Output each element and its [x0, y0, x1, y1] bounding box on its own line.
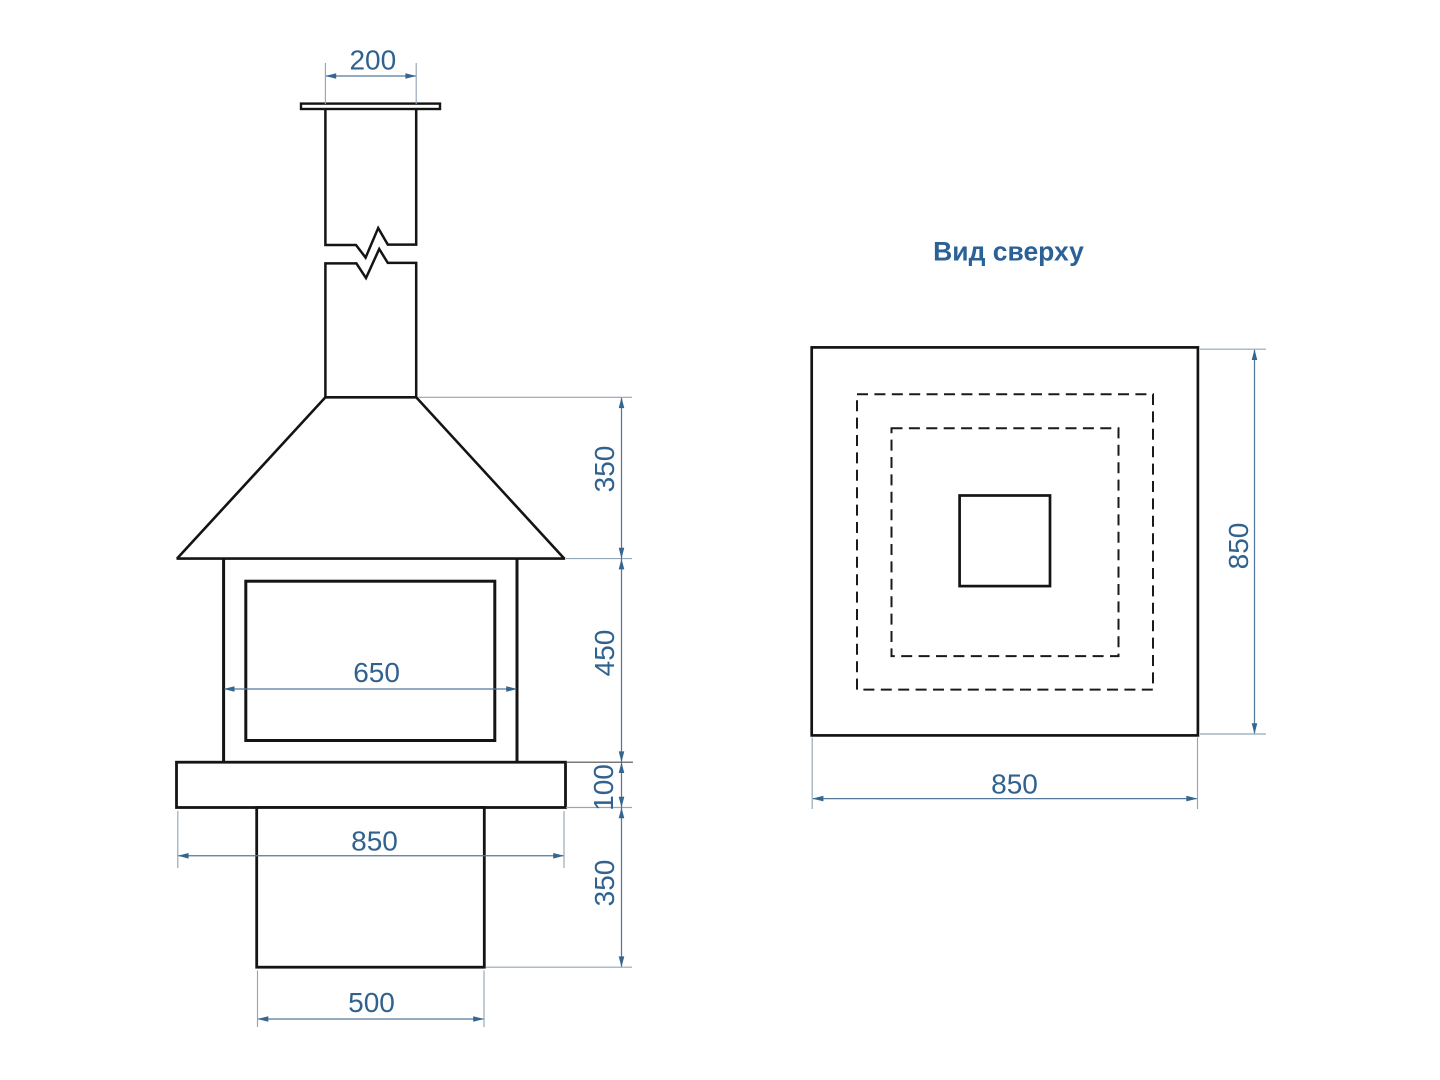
svg-text:850: 850	[1223, 523, 1254, 570]
svg-text:450: 450	[589, 630, 620, 677]
svg-text:650: 650	[353, 657, 400, 688]
svg-text:200: 200	[349, 45, 396, 76]
svg-text:850: 850	[351, 826, 398, 857]
svg-text:350: 350	[589, 860, 620, 907]
svg-text:100: 100	[588, 764, 619, 811]
svg-text:850: 850	[991, 769, 1038, 800]
svg-text:Вид сверху: Вид сверху	[933, 237, 1084, 267]
svg-text:500: 500	[348, 987, 395, 1018]
svg-text:350: 350	[589, 446, 620, 493]
